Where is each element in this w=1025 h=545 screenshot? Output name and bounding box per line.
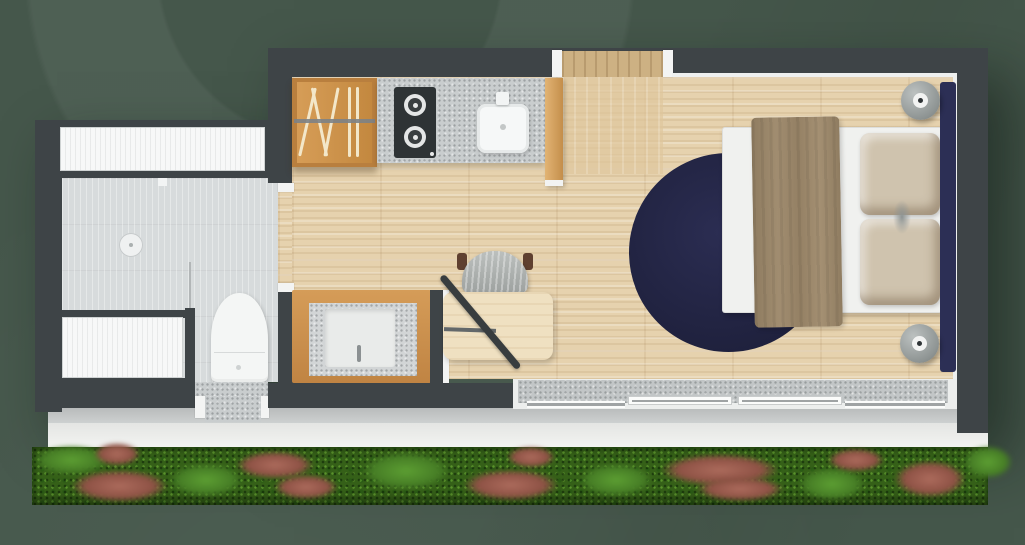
entry-step-mat (205, 396, 261, 422)
stove-icon (394, 87, 436, 158)
bath-vanity-divider-wall (278, 292, 293, 383)
hedge-red-patch (500, 443, 562, 471)
hedge-green-patch (957, 441, 1019, 483)
sliding-door-panel-left-line (632, 400, 728, 402)
navy-headboard (940, 82, 956, 372)
bathroom-wall-notch (158, 178, 167, 186)
pillow-crease (893, 200, 911, 234)
top-wall-inner-trim (672, 73, 955, 77)
shower-drain-dot (129, 243, 133, 247)
walkway-gray-strip (48, 407, 988, 423)
entry-mat-inner (195, 382, 268, 396)
vanity-right-wall (430, 290, 443, 383)
vanity-faucet-icon (357, 345, 361, 362)
bath-doorway-jamb-top (278, 183, 294, 192)
bathroom-bottom-wall (35, 378, 195, 408)
bed-blanket (751, 116, 843, 328)
top-door-leaf (562, 51, 663, 77)
tall-cabinet-white-cap (545, 180, 563, 186)
bathroom-doorway-floor (278, 183, 292, 292)
sliding-door-track-right (845, 403, 945, 406)
top-door-jamb-left (552, 50, 562, 77)
stove-burner-top (404, 94, 426, 116)
main-left-wall (268, 48, 292, 183)
stove-knob-dot (430, 152, 434, 156)
shower-glass-divider (189, 262, 191, 310)
entry-door-jamb-left (195, 396, 205, 418)
hedge-red-patch (450, 465, 572, 505)
garden-hedge (32, 447, 988, 505)
kitchen-rack-cabinet (292, 78, 377, 167)
sliding-door-panel-right-line (742, 400, 838, 402)
main-right-wall (957, 48, 988, 433)
hedge-red-patch (87, 439, 147, 469)
hedge-red-patch (820, 445, 892, 475)
bedside-cylinder-bottom (900, 324, 939, 363)
stove-burner-bottom (404, 126, 426, 148)
bedside-cylinder-top (901, 81, 940, 120)
toilet-seam (214, 352, 265, 353)
hedge-red-patch (265, 471, 347, 503)
kitchen-faucet-dot (500, 124, 506, 130)
bathroom-top-window (60, 127, 265, 171)
bathroom-stub-wall (185, 308, 195, 385)
kitchen-faucet-icon (496, 92, 509, 105)
hedge-green-patch (350, 447, 462, 495)
toilet-flush-dot (236, 365, 241, 370)
main-bottom-left-wall (268, 383, 517, 408)
bathroom-left-wall (35, 120, 62, 412)
hedge-red-patch (684, 473, 796, 505)
entry-floor-panel (562, 77, 663, 174)
floor-plan-scene (0, 0, 1025, 545)
bathroom-side-window (62, 317, 183, 378)
sliding-door-track-left (527, 403, 625, 406)
rack-metal-bar (294, 119, 375, 123)
deck-strip (518, 380, 948, 403)
kitchen-tall-cabinet-panel (545, 78, 563, 186)
